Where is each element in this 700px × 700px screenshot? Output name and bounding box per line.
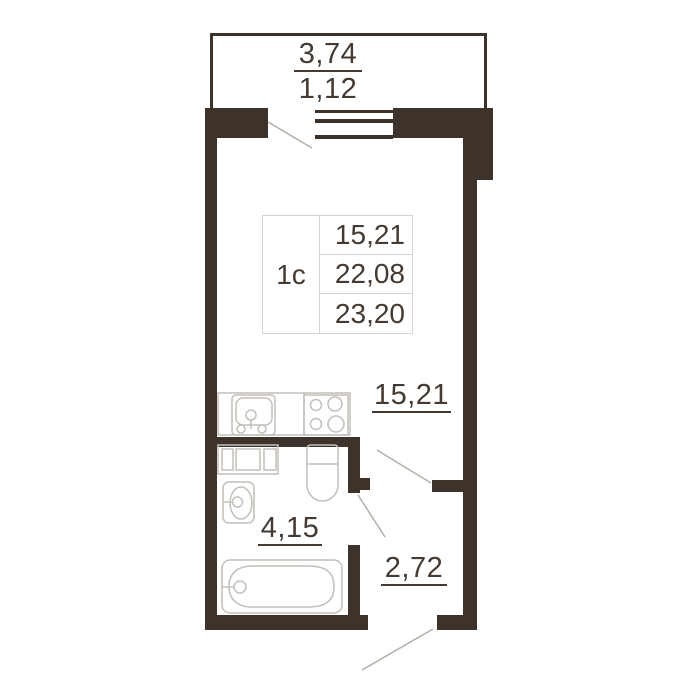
window-icon bbox=[315, 135, 393, 139]
toilet-icon bbox=[307, 445, 338, 501]
living-room-area-label: 15,21 bbox=[372, 380, 451, 413]
wall-hall-door-jamb bbox=[432, 480, 463, 492]
wall-bottom bbox=[205, 615, 368, 630]
balcony-depth-label: 1,12 bbox=[294, 74, 362, 104]
window-icon bbox=[315, 110, 393, 113]
wall-bathroom-top bbox=[217, 437, 360, 447]
unit-type-label: 1c bbox=[263, 216, 320, 333]
unit-living-area-value: 15,21 bbox=[320, 216, 412, 255]
unit-info-table: 1c 15,21 22,08 23,20 bbox=[262, 215, 413, 334]
hallway-area-label: 2,72 bbox=[381, 553, 447, 586]
stove-icon bbox=[304, 395, 348, 435]
bathroom-area-label: 4,15 bbox=[258, 513, 322, 546]
wall-right bbox=[463, 138, 477, 630]
sink-icon bbox=[232, 395, 275, 435]
wall-top-right bbox=[393, 108, 493, 138]
door-swing-line-living bbox=[377, 450, 431, 483]
wall-bathroom-door-jamb bbox=[360, 478, 370, 490]
door-swing-line-bathroom bbox=[358, 495, 385, 537]
wall-left bbox=[205, 108, 217, 630]
kitchen-counter bbox=[218, 393, 350, 435]
unit-total-area-value: 22,08 bbox=[320, 255, 412, 294]
washer-icon bbox=[218, 445, 278, 474]
wall-bathroom-right-upper bbox=[348, 437, 360, 493]
balcony-width-label: 3,74 bbox=[294, 39, 362, 72]
door-swing-line-balcony bbox=[268, 122, 312, 148]
unit-total-area-with-balcony-value: 23,20 bbox=[320, 294, 412, 333]
door-swing-line-entrance bbox=[362, 629, 433, 670]
floor-plan: 3,74 1,12 15,21 4,15 2,72 1c 15,21 22,08… bbox=[0, 0, 700, 700]
washbasin-icon bbox=[223, 482, 254, 523]
bathtub-icon bbox=[222, 560, 342, 613]
wall-entrance-jamb bbox=[437, 615, 475, 630]
window-icon bbox=[315, 119, 393, 123]
wall-right-outer-step bbox=[477, 138, 493, 180]
wall-bathroom-right-lower bbox=[348, 545, 360, 615]
